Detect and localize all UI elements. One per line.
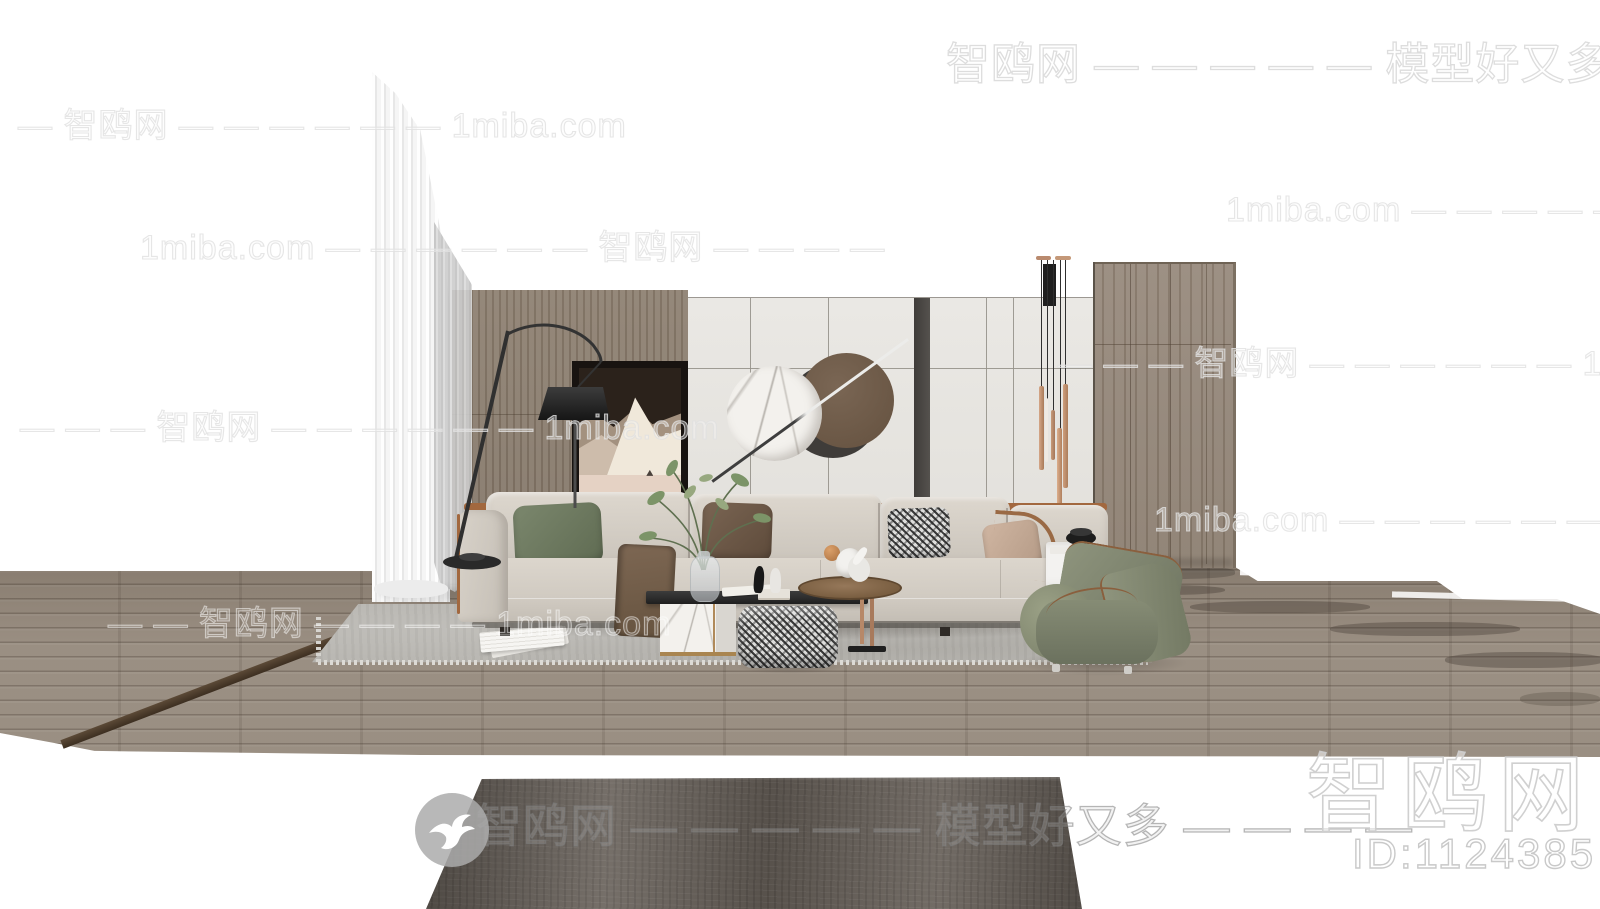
side-table-foot xyxy=(848,646,886,652)
vase-lip xyxy=(698,551,710,559)
pillow-houndstooth xyxy=(887,507,951,559)
pendant-cable xyxy=(1041,260,1042,388)
pendant-mount xyxy=(1036,256,1051,260)
cushion-gap xyxy=(878,503,880,565)
marble-base-right-face xyxy=(716,604,736,654)
marble-brass-base xyxy=(660,652,736,656)
cabinet-seam xyxy=(1130,264,1131,564)
side-table-leg xyxy=(860,592,864,644)
side-table-leg xyxy=(870,592,874,648)
lamp-base-cap xyxy=(459,553,485,561)
floor-shadow-streak xyxy=(1520,692,1600,706)
pendant-ceiling-pillar xyxy=(1043,264,1056,306)
pendant-tube xyxy=(1063,384,1068,488)
figurine-white xyxy=(770,568,781,593)
watermark-row-right-1: 1miba.com — — — — — — 智鸥网 — — xyxy=(1226,182,1600,231)
pendant-tube xyxy=(1045,398,1048,462)
watermark-row-left-3: — — — 智鸥网 — — — — — — 1miba.com xyxy=(20,400,720,449)
pendant-tube xyxy=(1039,386,1044,470)
watermark-top-right: 智鸥网 — — — — — 模型好又多 — xyxy=(946,28,1600,92)
lamp-wire xyxy=(578,362,601,387)
watermark-bottom-center: 智鸥网 — — — — — 模型好又多 — — — — xyxy=(476,790,1413,856)
watermark-row-left-1: — 智鸥网 — — — — — — 1miba.com xyxy=(18,98,627,147)
houndstooth-pouf xyxy=(738,606,838,668)
watermark-row-left-2: 1miba.com — — — — — — 智鸥网 — — — — xyxy=(140,220,885,269)
plank-highlight xyxy=(1240,569,1600,583)
marble-brass-seam xyxy=(713,604,715,654)
render-canvas: 智鸥网 — — — — — 模型好又多 — — 智鸥网 — — — — — — … xyxy=(0,0,1600,909)
pendant-cable xyxy=(1053,260,1054,412)
watermark-row-right-2: — — — 智鸥网 — — — — — — 1miba.com xyxy=(1058,336,1600,385)
chair-foot xyxy=(1052,664,1060,672)
floor-lamp xyxy=(425,315,675,585)
floor-shadow-streak xyxy=(1330,622,1520,636)
floor-shadow-streak xyxy=(1445,652,1600,668)
floor-shadow-streak xyxy=(1190,601,1370,613)
watermark-row-right-3: 1miba.com — — — — — — 智鸥网 — — — — — — xyxy=(1154,492,1600,541)
chair-foot xyxy=(1124,666,1132,674)
model-id-label: ID:1124385 xyxy=(1352,830,1596,878)
speaker-top xyxy=(1070,528,1092,536)
panel-seam xyxy=(688,368,1093,369)
pendant-tube xyxy=(1051,410,1055,460)
wall-art-marble-circle xyxy=(727,366,822,461)
zhiou-bird-logo xyxy=(415,793,489,867)
side-table-wood-top xyxy=(798,576,902,600)
pendant-mount xyxy=(1055,256,1071,260)
sofa-foot xyxy=(940,627,950,636)
glass-vase xyxy=(690,556,720,602)
pendant-cable xyxy=(1047,260,1048,400)
watermark-row-floor: — — 智鸥网 — — — — 1miba.com xyxy=(108,596,671,645)
lamp-arc-arm xyxy=(508,325,601,362)
